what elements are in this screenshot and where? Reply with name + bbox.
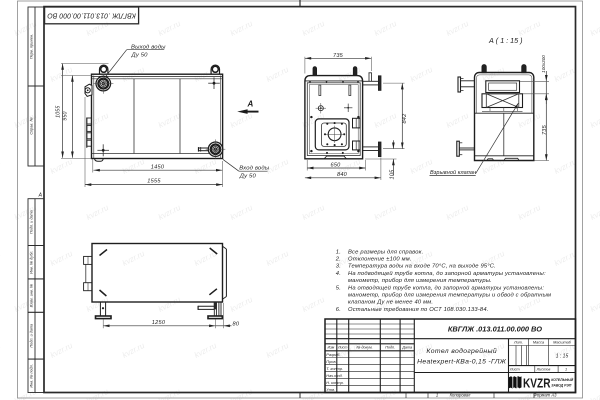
svg-text:Справ. №: Справ. № (30, 117, 34, 134)
svg-text:Изм: Изм (327, 346, 334, 350)
svg-text:Т. контр.: Т. контр. (326, 366, 343, 371)
svg-text:kvzr.ru: kvzr.ru (121, 341, 147, 360)
svg-text:kvzr.ru: kvzr.ru (589, 19, 600, 38)
svg-text:2.: 2. (335, 257, 341, 263)
svg-text:kvzr.ru: kvzr.ru (85, 203, 111, 222)
svg-text:Н. контр.: Н. контр. (326, 380, 344, 385)
svg-text:kvzr.ru: kvzr.ru (0, 341, 3, 360)
svg-text:kvzr.ru: kvzr.ru (589, 387, 600, 400)
svg-text:Подп. и дата: Подп. и дата (30, 210, 34, 234)
svg-text:kvzr.ru: kvzr.ru (517, 111, 543, 130)
svg-text:Листов: Листов (536, 368, 551, 372)
svg-text:Разраб.: Разраб. (326, 352, 340, 357)
svg-text:№ докум.: № докум. (356, 346, 372, 350)
svg-text:kvzr.ru: kvzr.ru (445, 203, 471, 222)
svg-text:kvzr.ru: kvzr.ru (85, 111, 111, 130)
svg-text:ЗАВОД РЭП: ЗАВОД РЭП (551, 383, 572, 387)
svg-text:А: А (247, 99, 254, 108)
svg-text:kvzr.ru: kvzr.ru (193, 341, 219, 360)
svg-text:Лист: Лист (337, 346, 348, 350)
svg-text:1555: 1555 (147, 179, 161, 185)
svg-text:KVZR: KVZR (523, 375, 551, 390)
svg-text:kvzr.ru: kvzr.ru (229, 111, 255, 130)
svg-text:kvzr.ru: kvzr.ru (229, 19, 255, 38)
svg-text:kvzr.ru: kvzr.ru (481, 157, 507, 176)
svg-text:kvzr.ru: kvzr.ru (0, 65, 3, 84)
svg-text:842: 842 (402, 113, 408, 124)
svg-text:Взам. инв. №: Взам. инв. № (30, 284, 34, 307)
svg-text:kvzr.ru: kvzr.ru (445, 19, 471, 38)
svg-text:kvzr.ru: kvzr.ru (373, 19, 399, 38)
svg-text:kvzr.ru: kvzr.ru (373, 111, 399, 130)
svg-text:манометр, прибор для измерения: манометр, прибор для измерения температу… (348, 278, 492, 284)
svg-text:650: 650 (330, 162, 341, 168)
svg-text:Утв.: Утв. (326, 387, 335, 392)
svg-text:Инв. № подл.: Инв. № подл. (30, 364, 34, 388)
svg-text:Температура воды на входе 70°С: Температура воды на входе 70°С, на выход… (348, 264, 496, 270)
svg-text:КОТЕЛЬНЫЙ: КОТЕЛЬНЫЙ (551, 378, 574, 382)
svg-text:1055: 1055 (56, 106, 62, 118)
svg-text:kvzr.ru: kvzr.ru (589, 111, 600, 130)
svg-text:А ( 1 : 15 ): А ( 1 : 15 ) (488, 36, 523, 45)
svg-text:kvzr.ru: kvzr.ru (409, 65, 435, 84)
svg-text:Дата: Дата (401, 346, 412, 350)
svg-text:Подп.: Подп. (385, 346, 395, 350)
svg-text:kvzr.ru: kvzr.ru (517, 19, 543, 38)
svg-text:клапаном Ду не менее 40 мм.: клапаном Ду не менее 40 мм. (348, 300, 433, 306)
svg-text:kvzr.ru: kvzr.ru (373, 203, 399, 222)
svg-text:kvzr.ru: kvzr.ru (265, 65, 291, 84)
svg-text:Ду 50: Ду 50 (131, 52, 149, 58)
svg-text:1.: 1. (336, 249, 341, 255)
svg-text:3.: 3. (336, 264, 341, 270)
svg-text:kvzr.ru: kvzr.ru (301, 203, 327, 222)
svg-text:Все размеры для справок.: Все размеры для справок. (348, 249, 423, 255)
svg-text:1: 1 (565, 368, 567, 372)
svg-text:kvzr.ru: kvzr.ru (85, 19, 111, 38)
svg-text:kvzr.ru: kvzr.ru (589, 203, 600, 222)
svg-text:Остальные требования по ОСТ 10: Остальные требования по ОСТ 108.030.133-… (348, 307, 489, 313)
svg-text:kvzr.ru: kvzr.ru (0, 157, 3, 176)
svg-text:Heatexpert-КВа-0,15 -ГЛЖ: Heatexpert-КВа-0,15 -ГЛЖ (417, 358, 507, 365)
svg-text:kvzr.ru: kvzr.ru (445, 111, 471, 130)
svg-text:kvzr.ru: kvzr.ru (265, 341, 291, 360)
svg-text:5.: 5. (336, 285, 341, 291)
svg-text:На подводящей трубе котла, до: На подводящей трубе котла, до запорной а… (348, 270, 546, 277)
svg-text:950: 950 (63, 111, 69, 120)
svg-text:kvzr.ru: kvzr.ru (121, 249, 147, 268)
svg-text:Формат А3: Формат А3 (534, 393, 558, 398)
svg-text:kvzr.ru: kvzr.ru (265, 249, 291, 268)
svg-text:Пров.: Пров. (326, 359, 336, 364)
svg-text:kvzr.ru: kvzr.ru (49, 341, 75, 360)
svg-text:Перв. примен.: Перв. примен. (30, 34, 34, 59)
svg-text:kvzr.ru: kvzr.ru (121, 157, 147, 176)
svg-text:На отводящей трубе котла, до з: На отводящей трубе котла, до запорной ар… (348, 284, 544, 291)
svg-text:100х300: 100х300 (541, 55, 546, 73)
svg-text:kvzr.ru: kvzr.ru (49, 249, 75, 268)
svg-text:kvzr.ru: kvzr.ru (517, 203, 543, 222)
svg-text:Масштаб: Масштаб (553, 340, 572, 344)
svg-text:КВГЛЖ .013.011.00.000 ВО: КВГЛЖ .013.011.00.000 ВО (47, 12, 136, 19)
svg-text:Масса: Масса (533, 340, 544, 344)
svg-text:kvzr.ru: kvzr.ru (49, 157, 75, 176)
svg-text:840: 840 (337, 172, 348, 178)
svg-text:kvzr.ru: kvzr.ru (157, 203, 183, 222)
svg-text:kvzr.ru: kvzr.ru (193, 157, 219, 176)
svg-text:Взрывной клапан: Взрывной клапан (430, 169, 476, 176)
svg-text:манометр, прибор для измерения: манометр, прибор для измерения температу… (348, 293, 551, 299)
svg-text:1 : 15: 1 : 15 (556, 354, 569, 360)
svg-text:Ду 50: Ду 50 (239, 174, 257, 180)
svg-text:1250: 1250 (152, 320, 166, 326)
svg-text:kvzr.ru: kvzr.ru (301, 295, 327, 314)
svg-text:Лит.: Лит. (513, 340, 523, 344)
svg-text:80: 80 (233, 322, 240, 328)
svg-text:1450: 1450 (151, 164, 165, 170)
svg-text:kvzr.ru: kvzr.ru (157, 19, 183, 38)
svg-text:kvzr.ru: kvzr.ru (229, 203, 255, 222)
svg-text:Лист: Лист (509, 368, 520, 372)
svg-text:КВГЛЖ .013.011.00.000 ВО: КВГЛЖ .013.011.00.000 ВО (448, 325, 542, 334)
svg-text:1: 1 (436, 393, 438, 398)
svg-text:А: А (38, 193, 43, 199)
svg-text:Нач.отд.: Нач.отд. (326, 373, 342, 378)
svg-text:735: 735 (542, 124, 548, 135)
svg-text:kvzr.ru: kvzr.ru (301, 19, 327, 38)
svg-text:Инв. № дубл.: Инв. № дубл. (30, 251, 34, 274)
svg-text:kvzr.ru: kvzr.ru (157, 111, 183, 130)
svg-text:Копировал: Копировал (450, 393, 471, 398)
svg-text:kvzr.ru: kvzr.ru (85, 295, 111, 314)
svg-text:Вход воды: Вход воды (239, 165, 269, 171)
svg-text:Котел водогрейный: Котел водогрейный (426, 347, 497, 355)
svg-text:kvzr.ru: kvzr.ru (157, 295, 183, 314)
svg-text:6.: 6. (336, 307, 341, 313)
svg-text:Подп. и дата: Подп. и дата (30, 324, 34, 348)
svg-text:kvzr.ru: kvzr.ru (49, 65, 75, 84)
svg-text:kvzr.ru: kvzr.ru (0, 249, 3, 268)
svg-text:4.: 4. (336, 271, 341, 277)
svg-text:735: 735 (333, 53, 344, 59)
svg-text:105: 105 (389, 169, 395, 180)
svg-text:kvzr.ru: kvzr.ru (229, 295, 255, 314)
svg-text:Отклонение ±100 мм.: Отклонение ±100 мм. (348, 257, 412, 263)
svg-text:kvzr.ru: kvzr.ru (589, 295, 600, 314)
